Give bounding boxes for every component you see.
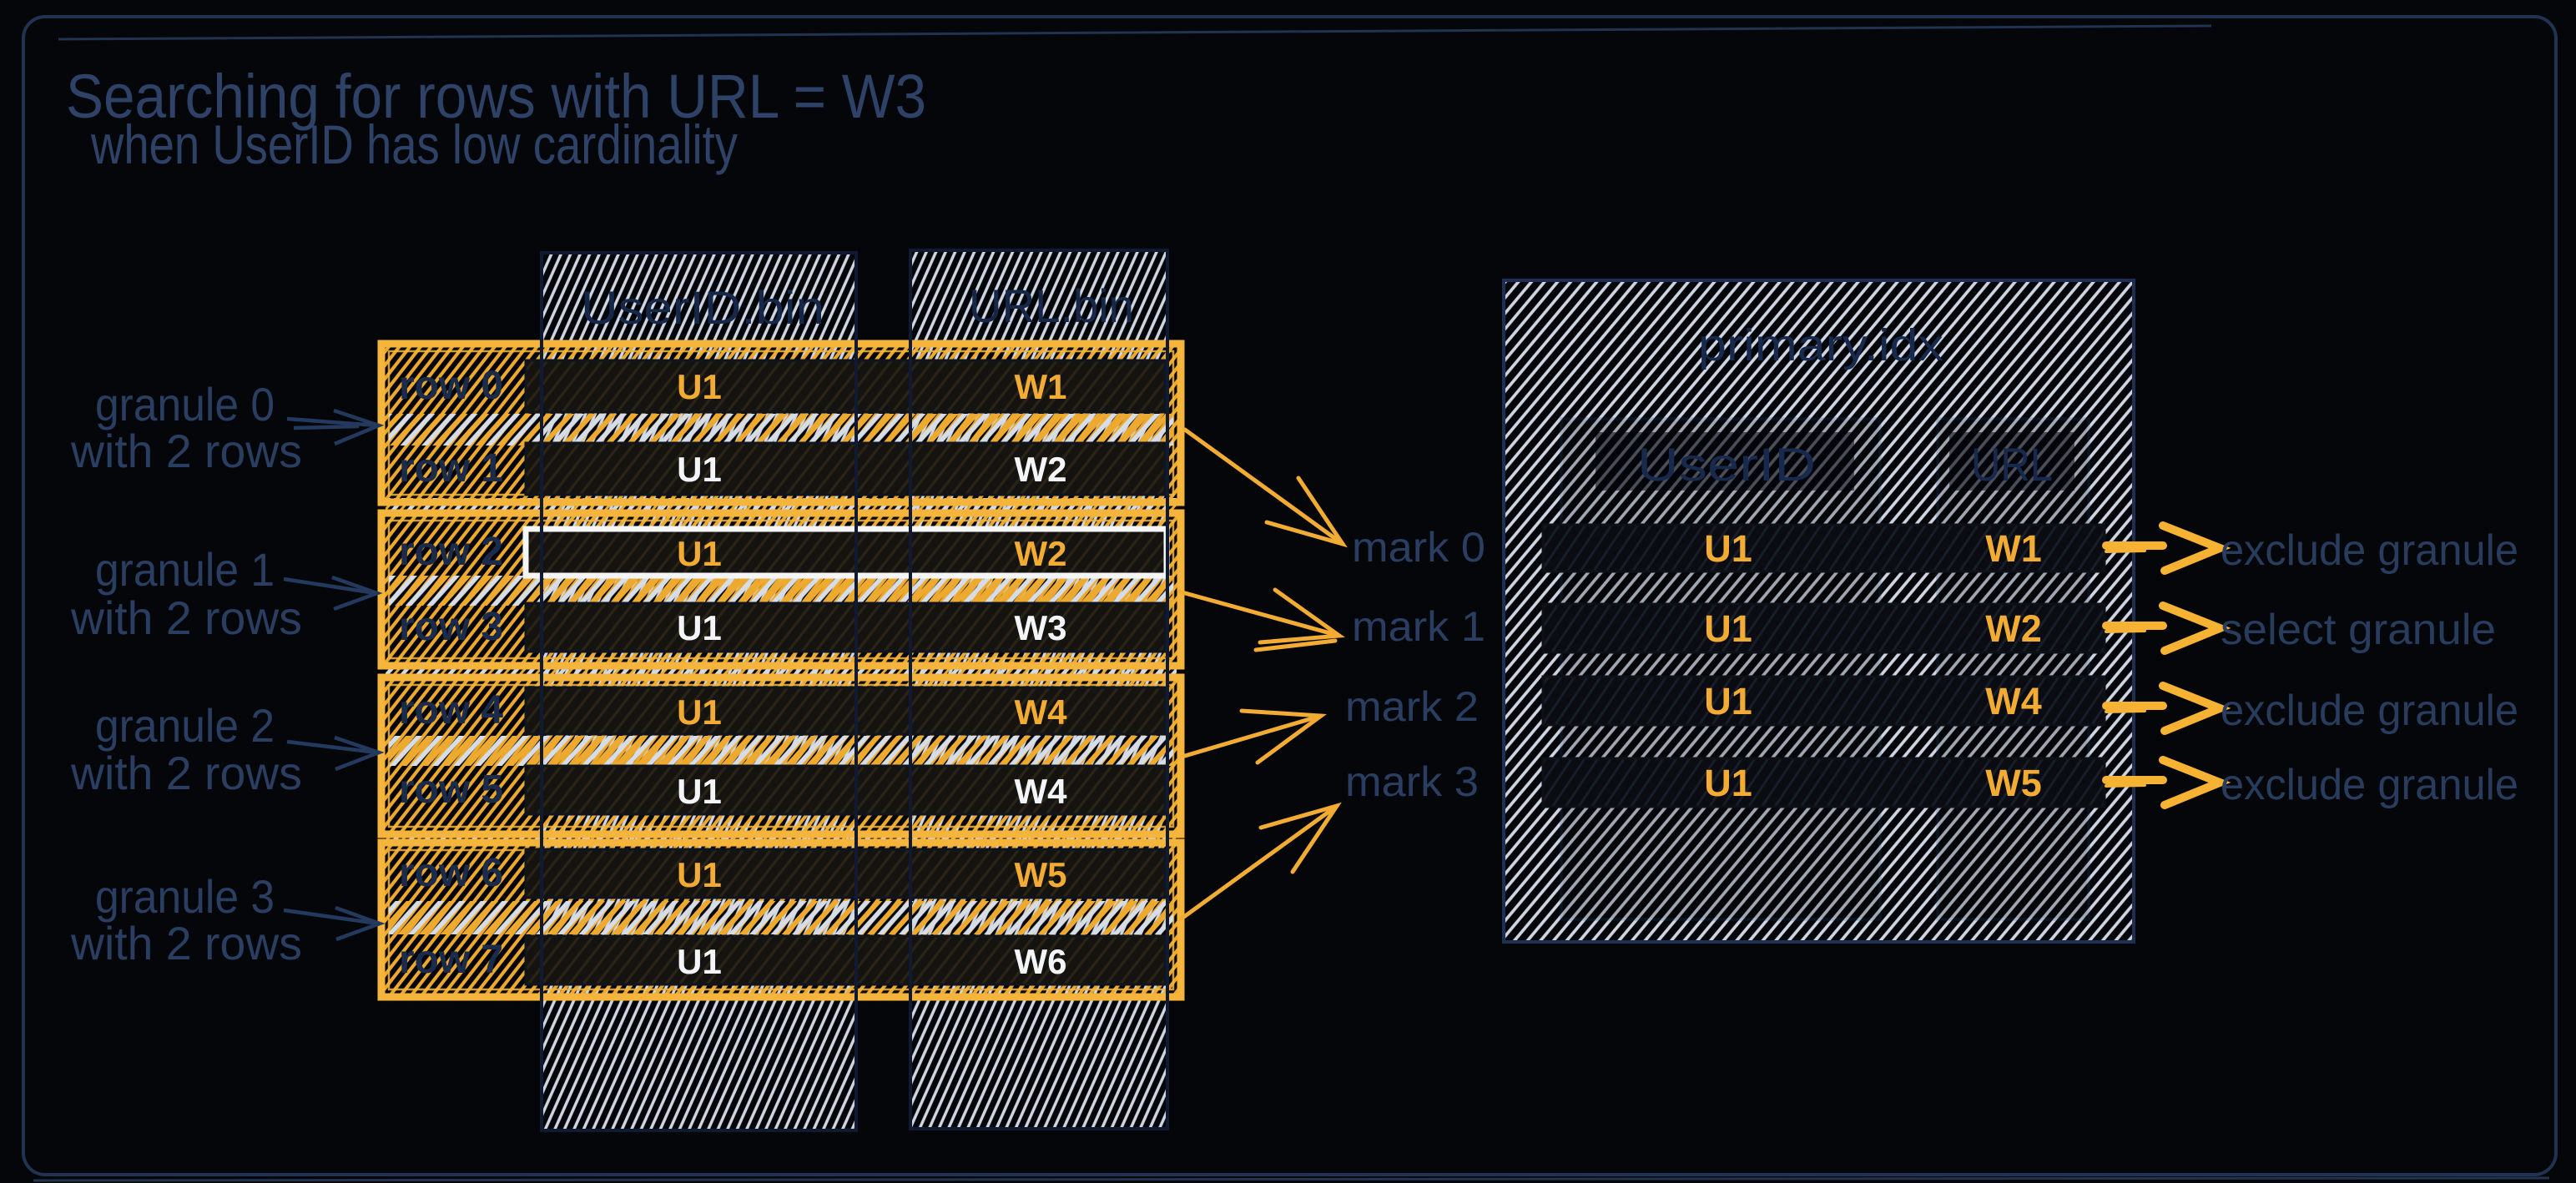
svg-text:mark 1: mark 1 [1352, 603, 1485, 650]
svg-text:row 4: row 4 [399, 688, 503, 732]
svg-text:W4: W4 [1015, 772, 1068, 811]
svg-text:U1: U1 [677, 692, 722, 732]
svg-text:with 2 rows: with 2 rows [70, 425, 302, 477]
svg-text:mark 0: mark 0 [1352, 524, 1485, 571]
svg-text:row 5: row 5 [399, 768, 503, 812]
svg-text:U1: U1 [1704, 762, 1752, 804]
svg-text:W3: W3 [1015, 608, 1067, 647]
svg-text:with 2 rows: with 2 rows [70, 747, 302, 799]
svg-text:U1: U1 [677, 608, 722, 647]
svg-text:granule 1: granule 1 [95, 543, 275, 596]
svg-text:select granule: select granule [2221, 606, 2496, 654]
svg-text:W2: W2 [1015, 534, 1067, 573]
svg-text:U1: U1 [677, 534, 722, 573]
svg-text:U1: U1 [1704, 607, 1752, 650]
svg-text:U1: U1 [677, 772, 722, 811]
svg-text:URL: URL [1971, 438, 2053, 491]
svg-text:with 2 rows: with 2 rows [70, 591, 302, 644]
svg-text:granule 3: granule 3 [95, 870, 275, 923]
svg-text:U1: U1 [1704, 527, 1752, 570]
svg-text:row 2: row 2 [399, 530, 503, 574]
svg-text:U1: U1 [677, 942, 722, 981]
svg-text:U1: U1 [677, 450, 722, 489]
svg-text:W2: W2 [1015, 450, 1067, 489]
svg-text:row 7: row 7 [399, 938, 503, 982]
svg-text:exclude granule: exclude granule [2221, 761, 2518, 809]
svg-text:UserID: UserID [1637, 438, 1816, 491]
svg-text:mark 3: mark 3 [1345, 758, 1479, 805]
svg-text:with 2 rows: with 2 rows [70, 917, 302, 969]
svg-text:exclude granule: exclude granule [2221, 687, 2518, 735]
svg-text:W6: W6 [1015, 942, 1067, 981]
svg-text:when UserID has low cardinalit: when UserID has low cardinality [90, 113, 738, 175]
svg-text:W4: W4 [1985, 680, 2042, 722]
svg-text:W2: W2 [1985, 607, 2042, 650]
svg-text:W5: W5 [1985, 762, 2042, 804]
svg-text:exclude granule: exclude granule [2221, 526, 2518, 575]
svg-text:W1: W1 [1015, 367, 1067, 406]
svg-text:U1: U1 [677, 855, 722, 894]
svg-text:granule 2: granule 2 [95, 699, 275, 752]
svg-text:U1: U1 [677, 367, 722, 406]
svg-text:W1: W1 [1985, 527, 2042, 570]
svg-text:row 3: row 3 [399, 605, 503, 649]
svg-text:UserID.bin: UserID.bin [581, 281, 824, 334]
svg-text:row 6: row 6 [399, 851, 503, 895]
svg-text:granule 0: granule 0 [95, 378, 275, 430]
svg-text:row 0: row 0 [399, 364, 503, 408]
svg-text:primary.idx: primary.idx [1698, 320, 1943, 370]
svg-text:mark 2: mark 2 [1345, 683, 1479, 730]
svg-text:U1: U1 [1704, 680, 1752, 722]
svg-text:row 1: row 1 [399, 446, 503, 491]
svg-text:URL.bin: URL.bin [969, 279, 1134, 332]
svg-text:W5: W5 [1015, 855, 1067, 894]
svg-text:W4: W4 [1015, 692, 1068, 732]
